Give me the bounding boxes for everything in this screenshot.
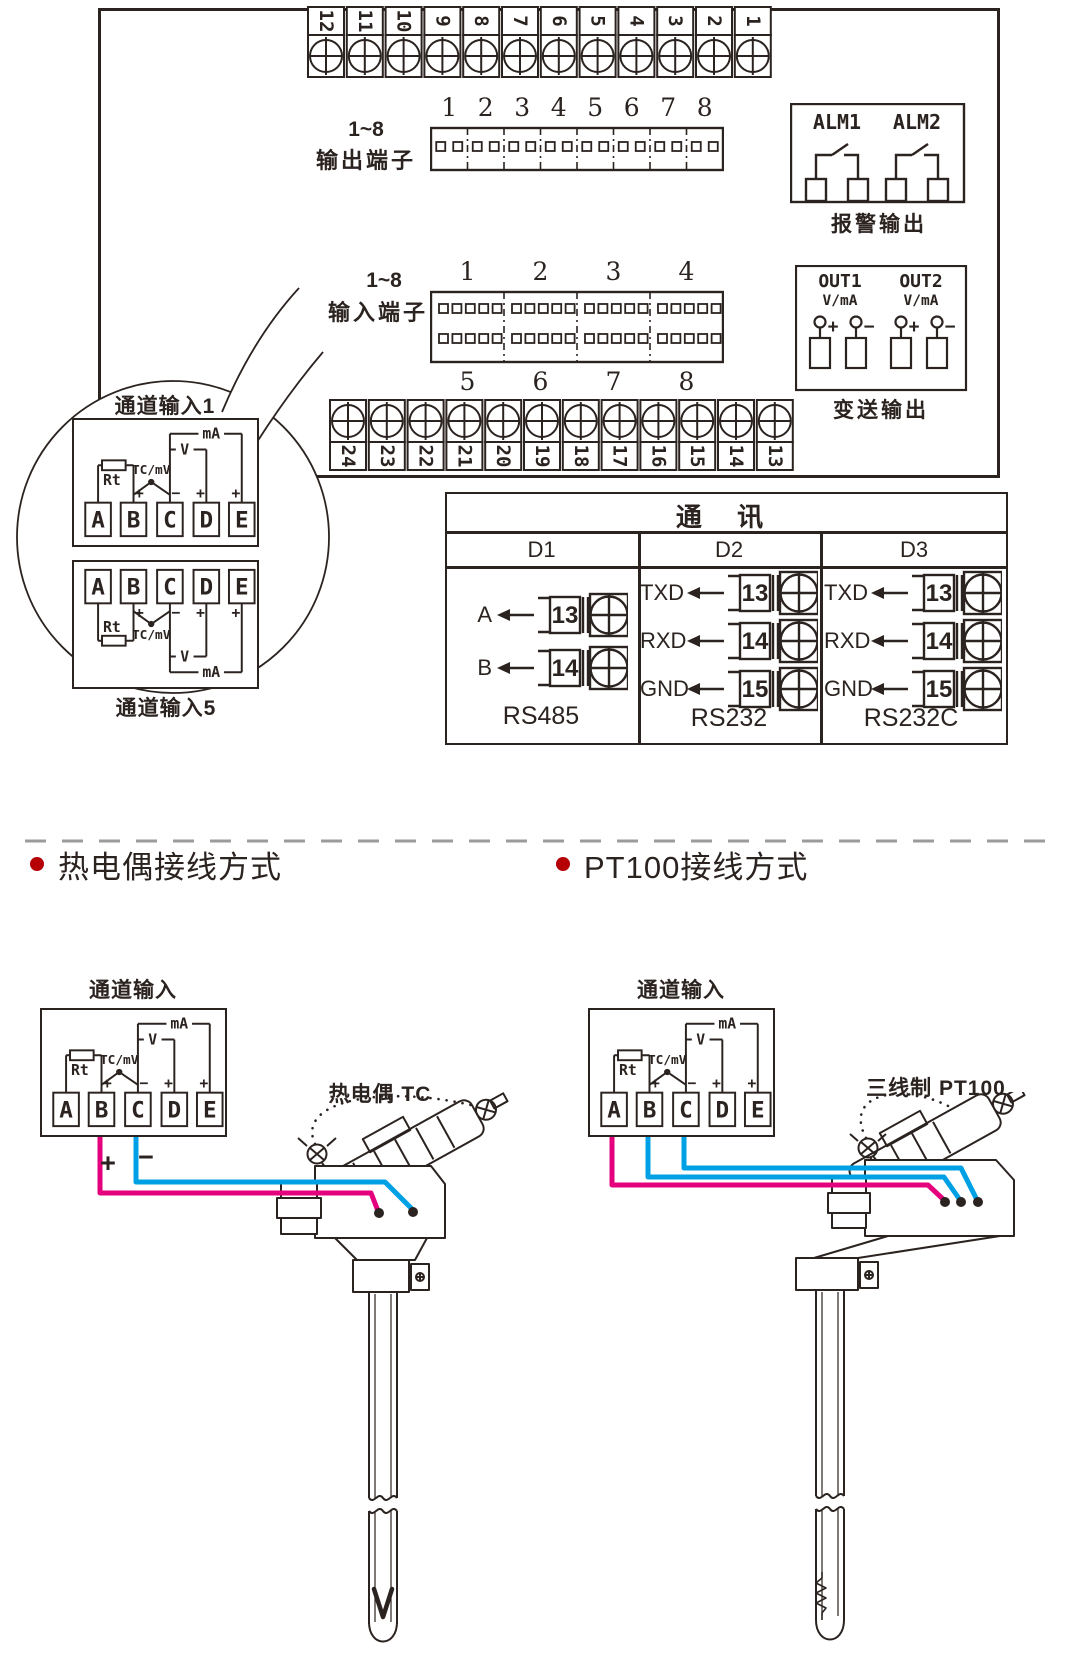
svg-text:13: 13 — [742, 580, 769, 607]
svg-text:13: 13 — [926, 580, 953, 607]
svg-text:14: 14 — [742, 628, 769, 655]
comm-row: A13 — [450, 592, 628, 638]
svg-text:C: C — [131, 1097, 145, 1123]
svg-text:Rt: Rt — [103, 619, 121, 636]
channel-input-box-tc: ABCDERtVmATC/mV+−++ — [40, 1008, 227, 1137]
channel-input-5-title: 通道输入5 — [76, 692, 256, 722]
comm-caption-rs485: RS485 — [466, 702, 616, 731]
tc-section-heading: 热电偶接线方式 — [58, 842, 282, 887]
thermocouple-probe-illustration — [265, 1092, 515, 1664]
svg-text:D: D — [200, 574, 214, 600]
comm-signal-label: RXD — [640, 628, 684, 654]
svg-text:−: − — [687, 1076, 696, 1093]
svg-text:+: + — [231, 486, 240, 503]
pt100-probe-illustration — [730, 1092, 1060, 1664]
svg-text:Rt: Rt — [103, 472, 121, 489]
svg-text:E: E — [203, 1097, 217, 1123]
svg-text:Rt: Rt — [619, 1062, 637, 1079]
svg-text:B: B — [643, 1097, 657, 1123]
comm-caption-rs232c: RS232C — [836, 704, 986, 733]
svg-text:Rt: Rt — [71, 1062, 89, 1079]
svg-text:E: E — [235, 574, 249, 600]
svg-text:+: + — [747, 1076, 756, 1093]
pt100-channel-input-title: 通道输入 — [606, 974, 756, 1004]
comm-row: RXD14 — [640, 618, 818, 664]
comm-table-hline2 — [445, 566, 1008, 569]
comm-table-hline1 — [445, 531, 1008, 534]
input-terminals-label: 输入端子 — [310, 295, 446, 327]
comm-table-vline2 — [820, 531, 823, 743]
svg-text:+: + — [135, 486, 144, 503]
svg-text:B: B — [127, 507, 141, 533]
svg-text:B: B — [127, 574, 141, 600]
svg-text:D: D — [716, 1097, 730, 1123]
comm-header-d1: D1 — [445, 537, 638, 563]
bullet-icon — [30, 857, 44, 871]
svg-text:+: + — [651, 1076, 660, 1093]
svg-text:+: + — [712, 1076, 721, 1093]
comm-row: TXD13 — [824, 570, 1002, 616]
output-terminals-label: 输出端子 — [298, 143, 434, 175]
svg-text:mA: mA — [718, 1016, 736, 1033]
svg-text:mA: mA — [202, 426, 220, 443]
pt100-section-heading: PT100接线方式 — [584, 842, 808, 887]
svg-text:+: + — [199, 1076, 208, 1093]
svg-text:+: + — [196, 486, 205, 503]
comm-signal-label: A — [450, 602, 494, 628]
svg-text:A: A — [59, 1097, 73, 1123]
svg-text:A: A — [91, 574, 105, 600]
svg-text:14: 14 — [552, 655, 579, 682]
wiring-diagram-page: 121110987654321 1~8 输出端子 12345678 ALM1AL… — [0, 0, 1080, 1664]
svg-text:−: − — [139, 1076, 148, 1093]
channel-input-5-box: ABCDERtVmATC/mV+−++ — [72, 560, 259, 689]
tc-channel-input-title: 通道输入 — [58, 974, 208, 1004]
svg-text:B: B — [95, 1097, 109, 1123]
svg-text:V: V — [180, 648, 189, 665]
svg-text:−: − — [171, 486, 180, 503]
comm-caption-rs232: RS232 — [654, 704, 804, 733]
svg-text:V: V — [696, 1031, 705, 1048]
comm-signal-label: RXD — [824, 628, 868, 654]
input-terminals-label-range: 1~8 — [324, 269, 444, 293]
svg-text:C: C — [679, 1097, 693, 1123]
svg-text:+: + — [103, 1076, 112, 1093]
svg-text:+: + — [231, 605, 240, 622]
svg-text:mA: mA — [202, 664, 220, 681]
comm-header-d3: D3 — [820, 537, 1008, 563]
channel-input-1-box: ABCDERtVmATC/mV+−++ — [72, 418, 259, 547]
comm-signal-label: B — [450, 655, 494, 681]
svg-text:mA: mA — [170, 1016, 188, 1033]
svg-text:C: C — [163, 507, 177, 533]
output-terminals-label-range: 1~8 — [306, 118, 426, 142]
comm-signal-label: TXD — [640, 580, 684, 606]
svg-text:E: E — [235, 507, 249, 533]
comm-header-d2: D2 — [638, 537, 820, 563]
comm-row: B14 — [450, 645, 628, 691]
comm-signal-label: GND — [824, 676, 868, 702]
svg-text:−: − — [171, 605, 180, 622]
svg-text:14: 14 — [926, 628, 953, 655]
svg-text:+: + — [196, 605, 205, 622]
svg-text:D: D — [200, 507, 214, 533]
channel-input-1-title: 通道输入1 — [80, 390, 250, 420]
svg-text:TC/mV: TC/mV — [100, 1053, 139, 1068]
comm-row: RXD14 — [824, 618, 1002, 664]
svg-text:V: V — [148, 1031, 157, 1048]
svg-text:A: A — [91, 507, 105, 533]
comm-row: TXD13 — [640, 570, 818, 616]
svg-text:13: 13 — [552, 602, 579, 629]
svg-text:TC/mV: TC/mV — [132, 463, 171, 478]
svg-text:TC/mV: TC/mV — [648, 1053, 687, 1068]
svg-text:D: D — [168, 1097, 182, 1123]
comm-table-title: 通 讯 — [445, 497, 1008, 534]
svg-text:+: + — [164, 1076, 173, 1093]
svg-text:+: + — [135, 605, 144, 622]
svg-text:15: 15 — [742, 676, 769, 703]
svg-text:V: V — [180, 441, 189, 458]
svg-text:C: C — [163, 574, 177, 600]
svg-text:A: A — [607, 1097, 621, 1123]
bullet-icon — [556, 857, 570, 871]
comm-signal-label: TXD — [824, 580, 868, 606]
svg-text:15: 15 — [926, 676, 953, 703]
svg-text:TC/mV: TC/mV — [132, 628, 171, 643]
comm-signal-label: GND — [640, 676, 684, 702]
